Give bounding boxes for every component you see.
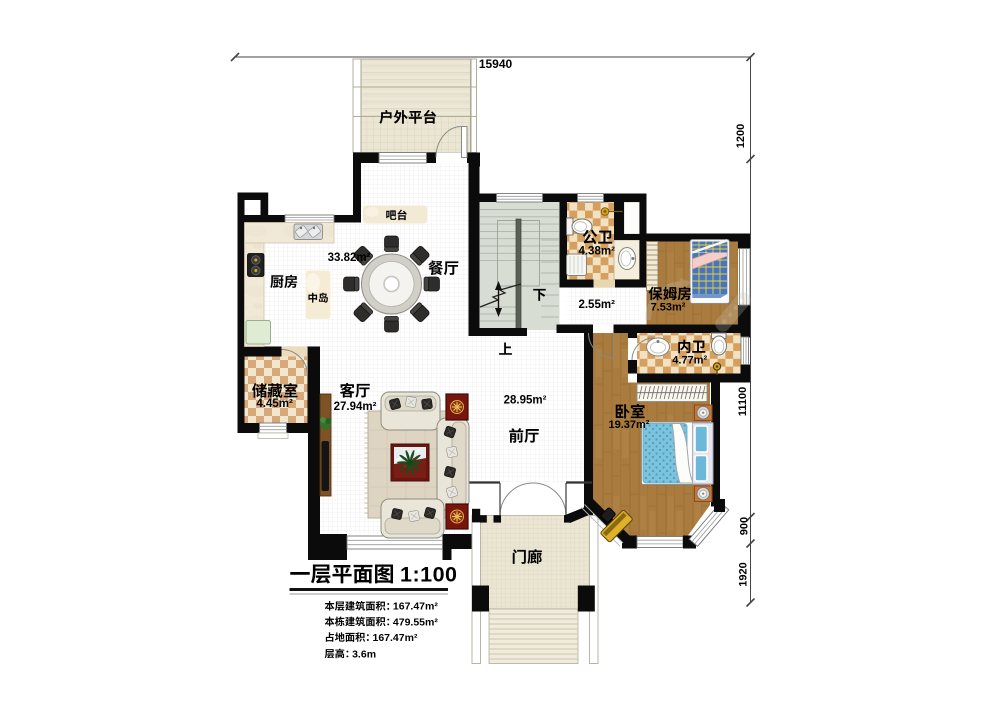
svg-text:167.47m²: 167.47m² [373, 632, 418, 644]
svg-text:28.95m²: 28.95m² [504, 395, 547, 407]
svg-text:4.38m²: 4.38m² [578, 246, 615, 258]
svg-text:27.94m²: 27.94m² [334, 401, 377, 413]
svg-text:11100: 11100 [737, 387, 749, 416]
svg-text:167.47m²: 167.47m² [393, 601, 438, 613]
svg-text:2.55m²: 2.55m² [578, 299, 615, 311]
svg-text:4.45m²: 4.45m² [256, 398, 293, 410]
svg-text:4.77m²: 4.77m² [672, 355, 707, 367]
svg-text:1200: 1200 [735, 124, 747, 148]
svg-text:15940: 15940 [479, 57, 513, 71]
svg-text:1:100: 1:100 [400, 563, 458, 587]
svg-text:7.53m²: 7.53m² [651, 302, 686, 314]
svg-text:900: 900 [739, 517, 751, 535]
svg-text:1920: 1920 [738, 562, 750, 586]
svg-text:479.55m²: 479.55m² [393, 616, 438, 628]
svg-text:33.82m²: 33.82m² [328, 252, 371, 264]
svg-text:3.6m: 3.6m [352, 648, 376, 660]
svg-text:19.37m²: 19.37m² [609, 419, 650, 431]
